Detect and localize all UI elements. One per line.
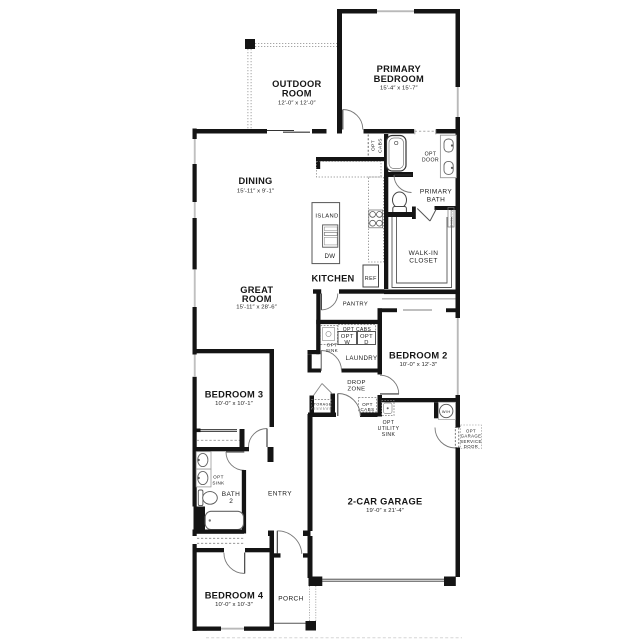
svg-text:PRIMARY: PRIMARY <box>377 64 422 74</box>
svg-text:2: 2 <box>229 498 233 505</box>
svg-text:BEDROOM: BEDROOM <box>374 74 424 84</box>
svg-text:10′-0″ x 10′-1″: 10′-0″ x 10′-1″ <box>215 401 253 407</box>
svg-text:WALK-IN: WALK-IN <box>409 250 439 257</box>
svg-text:DOOR: DOOR <box>464 444 479 449</box>
svg-text:2-CAR GARAGE: 2-CAR GARAGE <box>348 497 423 507</box>
svg-text:CLOSET: CLOSET <box>409 257 437 264</box>
svg-text:DINING: DINING <box>238 176 272 186</box>
svg-text:OPT: OPT <box>371 140 377 151</box>
svg-text:OPT: OPT <box>327 342 338 347</box>
svg-text:SERVICE: SERVICE <box>460 439 482 444</box>
svg-text:CABS: CABS <box>378 138 384 153</box>
svg-text:D: D <box>364 340 369 346</box>
svg-text:19′-0″ x 21′-4″: 19′-0″ x 21′-4″ <box>366 508 404 514</box>
svg-text:DW: DW <box>324 253 335 260</box>
svg-text:SINK: SINK <box>212 480 225 485</box>
svg-text:BATH: BATH <box>427 197 445 204</box>
svg-text:REF: REF <box>365 276 377 282</box>
svg-text:KITCHEN: KITCHEN <box>311 273 354 283</box>
svg-text:LAUNDRY: LAUNDRY <box>346 355 378 362</box>
svg-text:PORCH: PORCH <box>278 596 303 603</box>
svg-text:ISLAND: ISLAND <box>315 213 338 219</box>
svg-text:STORAGE: STORAGE <box>311 403 332 407</box>
svg-text:OPT: OPT <box>425 151 437 157</box>
svg-text:GARAGE: GARAGE <box>461 434 482 439</box>
svg-text:ROOM: ROOM <box>242 294 272 304</box>
svg-text:SINK: SINK <box>326 348 339 353</box>
svg-text:12′-0″ x 12′-0″: 12′-0″ x 12′-0″ <box>278 100 316 106</box>
svg-text:15′-11″ x 9′-1″: 15′-11″ x 9′-1″ <box>237 188 274 194</box>
svg-text:10′-0″ x 10′-3″: 10′-0″ x 10′-3″ <box>215 602 253 608</box>
svg-text:OUTDOOR: OUTDOOR <box>272 79 321 89</box>
svg-text:PRIMARY: PRIMARY <box>420 189 453 196</box>
svg-text:15′-4″ x 15′-7″: 15′-4″ x 15′-7″ <box>380 85 418 91</box>
svg-text:ROOM: ROOM <box>282 89 312 99</box>
svg-text:DROP: DROP <box>347 380 366 386</box>
svg-text:OPT: OPT <box>213 474 224 479</box>
svg-text:ZONE: ZONE <box>348 386 366 392</box>
svg-text:CABS: CABS <box>360 407 374 412</box>
svg-text:SINK: SINK <box>382 432 396 438</box>
svg-text:ENTRY: ENTRY <box>268 491 292 498</box>
svg-text:10′-0″ x 12′-3″: 10′-0″ x 12′-3″ <box>399 362 437 368</box>
svg-text:OPT: OPT <box>466 428 476 433</box>
svg-text:15′-11″ x 28′-6″: 15′-11″ x 28′-6″ <box>236 305 277 311</box>
svg-text:PANTRY: PANTRY <box>343 302 368 308</box>
svg-text:BEDROOM 3: BEDROOM 3 <box>205 390 264 400</box>
svg-text:BEDROOM 4: BEDROOM 4 <box>205 591 264 601</box>
svg-text:W: W <box>344 340 350 346</box>
svg-text:W/H: W/H <box>442 409 451 414</box>
svg-text:DOOR: DOOR <box>422 158 439 164</box>
svg-text:BEDROOM 2: BEDROOM 2 <box>389 351 448 361</box>
